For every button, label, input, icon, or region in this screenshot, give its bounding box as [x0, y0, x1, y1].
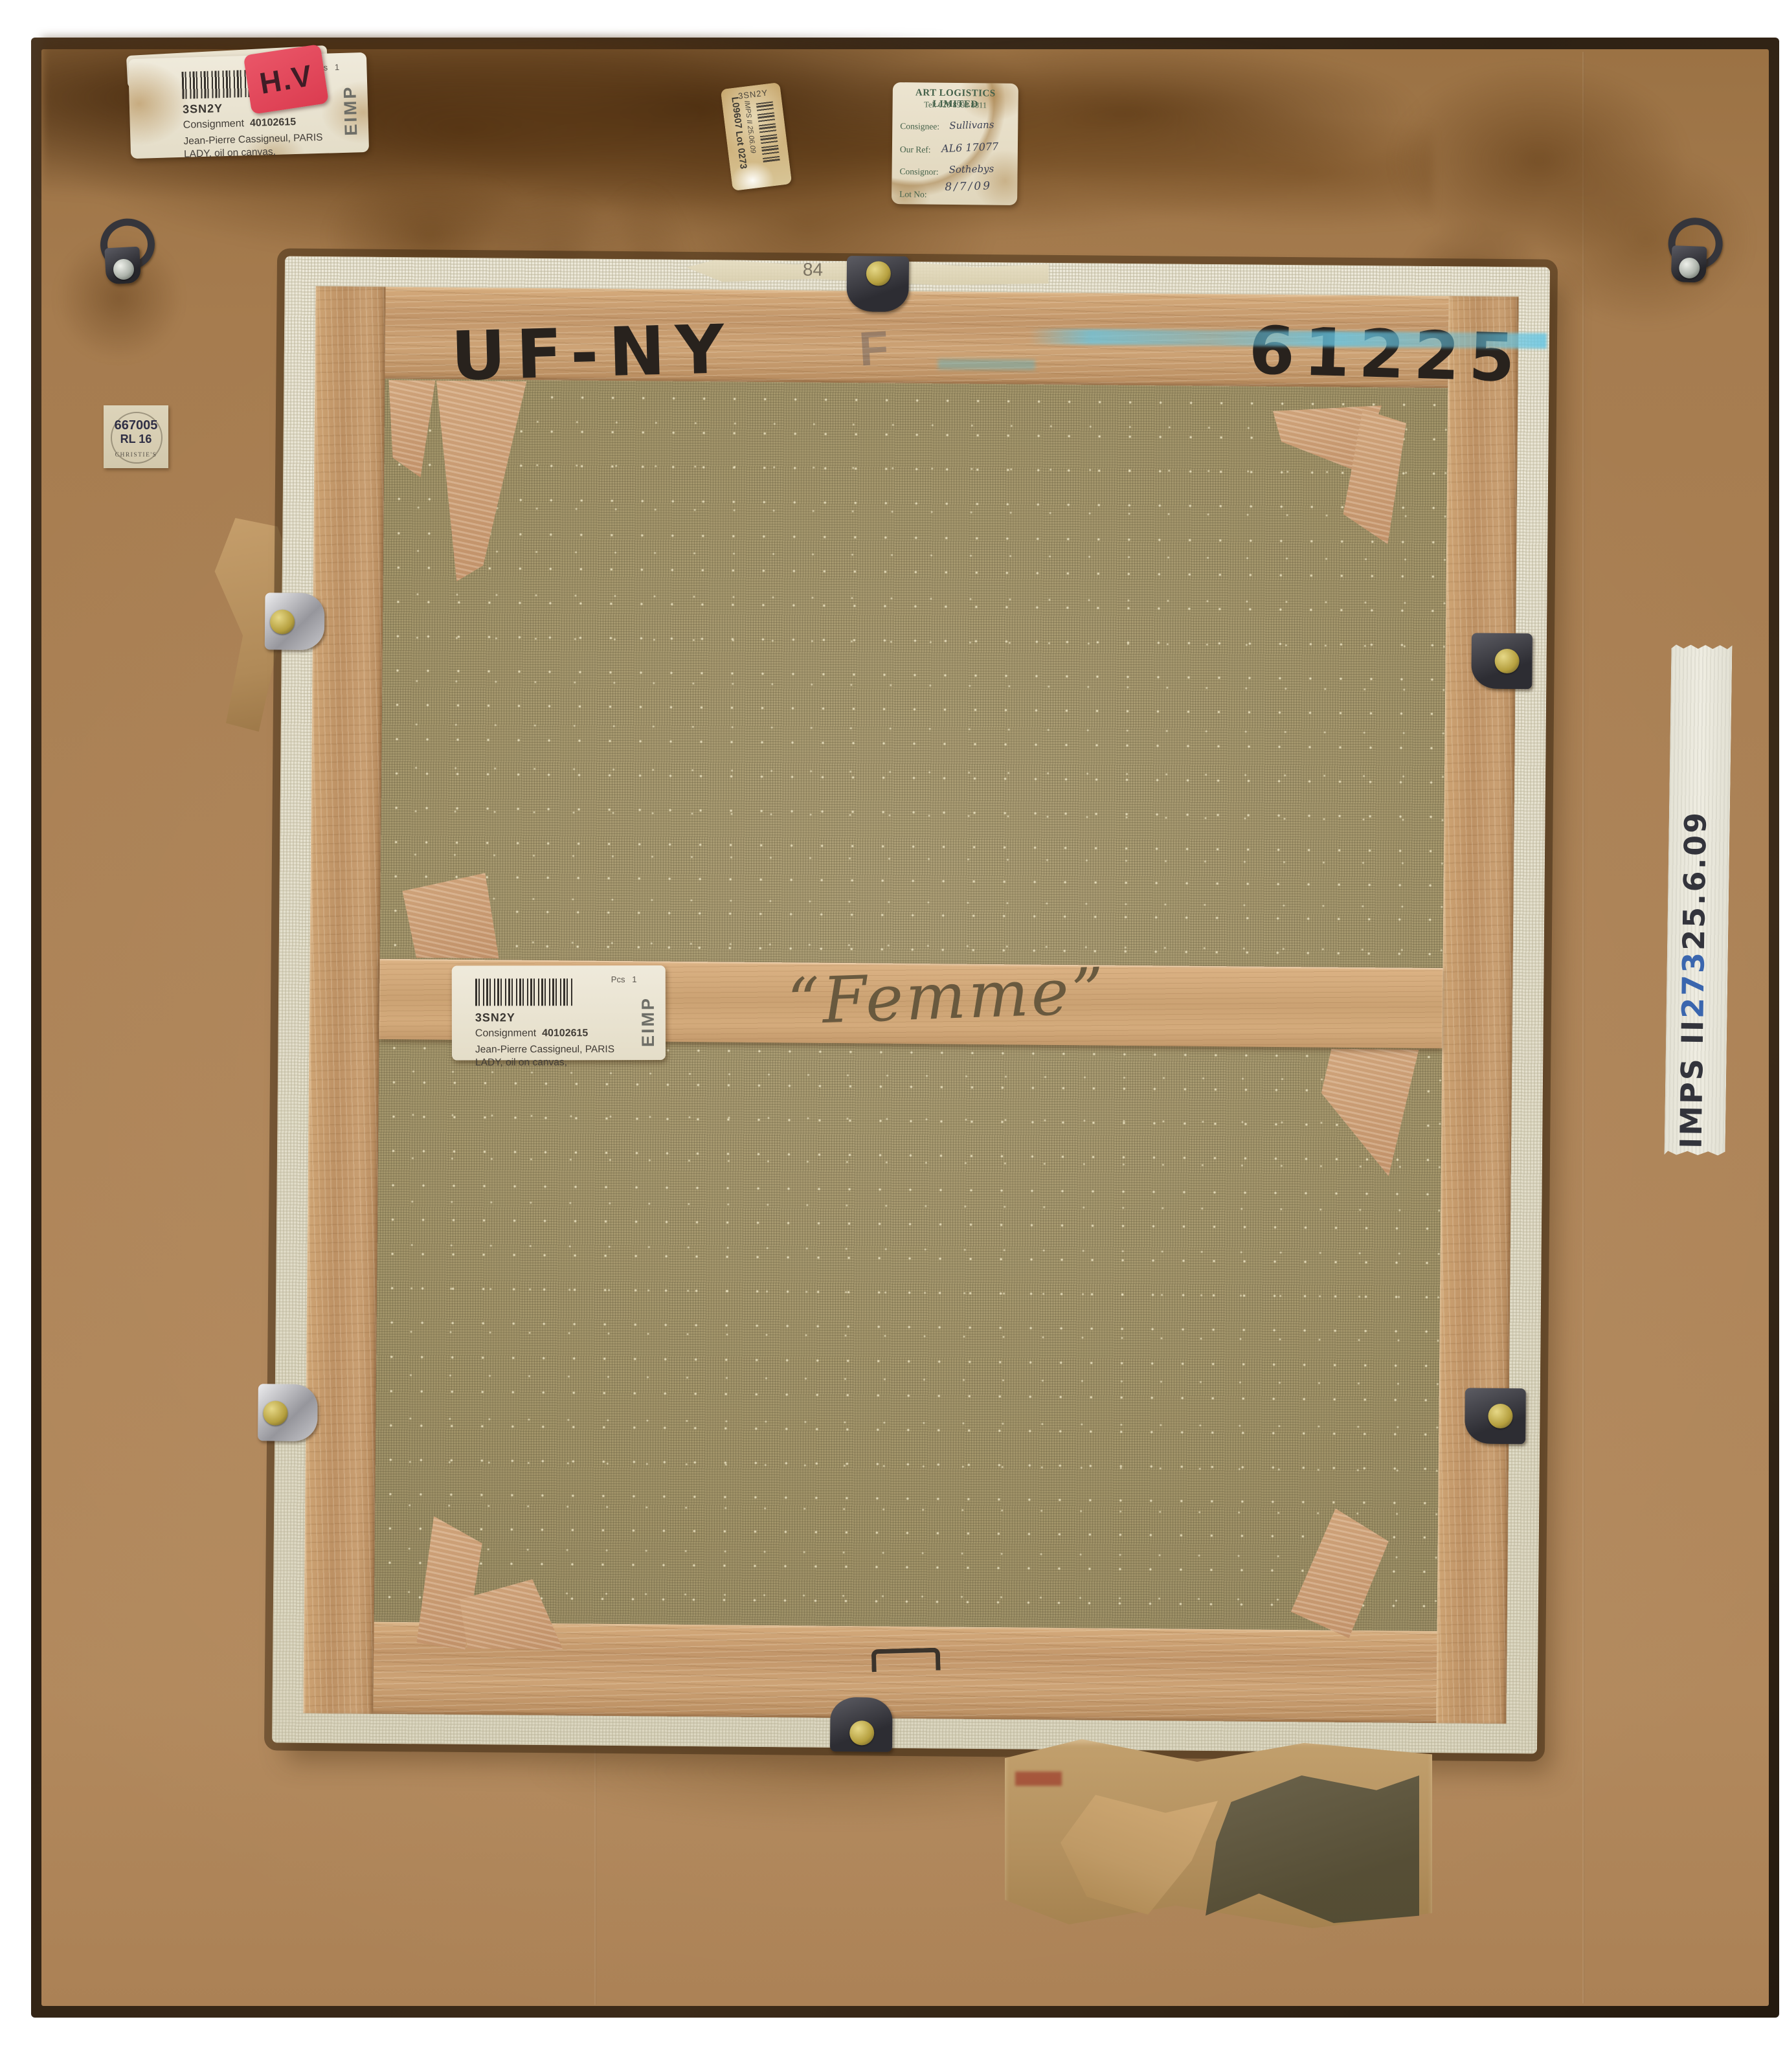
tape-sale-code: IMPS II [1674, 1019, 1711, 1149]
consignment-label-crossbar: 3SN2Y Consignment 40102615 Jean-Pierre C… [452, 965, 666, 1061]
inscription-stock-number: 61225 [1248, 312, 1525, 398]
painting-verso-photo: 84 UF-NY 61225 F 3SN2Y Consignment 40102… [0, 0, 1785, 2072]
handler-code: EIMP [638, 997, 658, 1047]
label-consignment-line: Consignment 40102615 [183, 117, 297, 131]
stencil-number: 84 [803, 259, 823, 280]
d-ring-hanger-right [1661, 217, 1718, 295]
consignor-value: Sothebys [949, 163, 994, 175]
label-code: 3SN2Y [475, 1011, 515, 1024]
hv-sticker: H.V [243, 44, 329, 115]
date-value: 8/7/09 [945, 179, 992, 194]
frame-clip-right-lower [1465, 1388, 1526, 1444]
stretcher-bar-right [1436, 296, 1518, 1724]
christies-number: 667005 [104, 418, 168, 433]
consignment-label-top: 3SN2Y Consignment 40102615 Jean-Pierre C… [128, 52, 369, 159]
frame-clip-left-lower [258, 1384, 318, 1441]
consignee-value: Sullivans [949, 118, 994, 131]
pcs-line: Pcs 1 [611, 974, 637, 984]
consignor-label: Consignor: [899, 166, 938, 177]
consignment-number: 40102615 [542, 1028, 588, 1039]
handler-code: EIMP [340, 85, 361, 136]
consignment-number: 40102615 [250, 117, 297, 129]
board-seam [1582, 52, 1585, 2003]
christies-brand: CHRISTIE'S [104, 452, 168, 458]
frame-clip-right-upper [1471, 633, 1532, 690]
barcode [756, 101, 780, 162]
label-consignment-line: Consignment 40102615 [475, 1028, 588, 1039]
consignee-label: Consignee: [900, 121, 939, 132]
lot-no-label: Lot No: [899, 189, 927, 199]
label-code: 3SN2Y [183, 102, 223, 117]
tape-sale-date: 25.6.09 [1676, 811, 1713, 951]
stretcher-bar-left [303, 286, 385, 1714]
inscription-faint-letter: F [857, 320, 890, 377]
logistics-tel: Tel: 020 8993 8811 [893, 100, 1018, 111]
tape-lot-number: 273 [1675, 951, 1711, 1019]
frame-clip-bottom [830, 1697, 893, 1752]
artwork-description: Jean-Pierre Cassigneul, PARIS LADY, oil … [475, 1043, 638, 1069]
board-seam [594, 1748, 597, 2005]
christies-label: 667005 RL 16 CHRISTIE'S [104, 405, 168, 468]
our-ref-value: AL6 17077 [941, 140, 999, 155]
inscription-destination: UF-NY [450, 310, 735, 396]
frame-clip-left-upper [265, 592, 325, 650]
lot-label: 3SN2Y L09607 Lot 0273 IMPS II 25.06.09 [721, 82, 792, 191]
blue-paint-smudge [938, 359, 1035, 370]
tape-annotation: IMPS II27325.6.09 [1674, 651, 1716, 1149]
inscription-title: “Femme” [786, 954, 1107, 1039]
sale-tape-label: IMPS II27325.6.09 [1665, 644, 1733, 1155]
barcode [475, 978, 574, 1006]
stretcher-assembly: 84 UF-NY 61225 F 3SN2Y Consignment 40102… [272, 256, 1550, 1754]
label-code: 3SN2Y [737, 87, 769, 101]
christies-location: RL 16 [104, 433, 168, 446]
frame-clip-top [846, 256, 909, 312]
d-ring-hanger-left [94, 218, 152, 297]
hv-text: H.V [257, 58, 316, 101]
red-paint-smear [1015, 1772, 1062, 1786]
artwork-description: Jean-Pierre Cassigneul, PARIS LADY, oil … [183, 131, 354, 161]
art-logistics-label: ART LOGISTICS LIMITED Tel: 020 8993 8811… [892, 82, 1018, 205]
staple [871, 1648, 941, 1672]
our-ref-label: Our Ref: [900, 144, 931, 155]
crossbar: 3SN2Y Consignment 40102615 Jean-Pierre C… [379, 959, 1443, 1048]
